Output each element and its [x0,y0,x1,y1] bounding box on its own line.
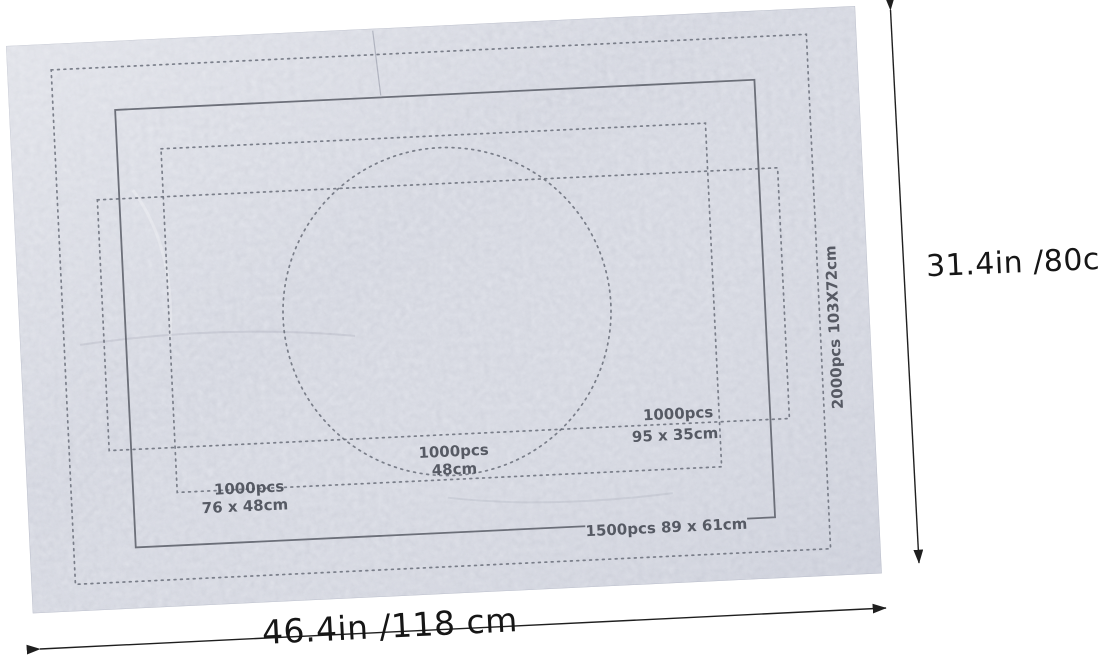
width-dimension-label: 46.4in /118 cm [261,600,519,652]
product-image: 1000pcs 76 x 48cm 1000pcs 48cm 1000pcs 9… [0,0,1101,670]
label-1000pcs-round-line1: 1000pcs [418,441,489,462]
height-dimension-label: 31.4in /80cm [925,241,1101,284]
label-1000pcs-round-line2: 48cm [431,459,477,479]
puzzle-mat: 1000pcs 76 x 48cm 1000pcs 48cm 1000pcs 9… [6,6,882,613]
puzzle-mat-graphic: 1000pcs 76 x 48cm 1000pcs 48cm 1000pcs 9… [6,6,882,613]
mat-sheen [6,6,882,613]
height-arrow [891,10,920,563]
label-1000pcs-panorama-line1: 1000pcs [643,403,714,424]
